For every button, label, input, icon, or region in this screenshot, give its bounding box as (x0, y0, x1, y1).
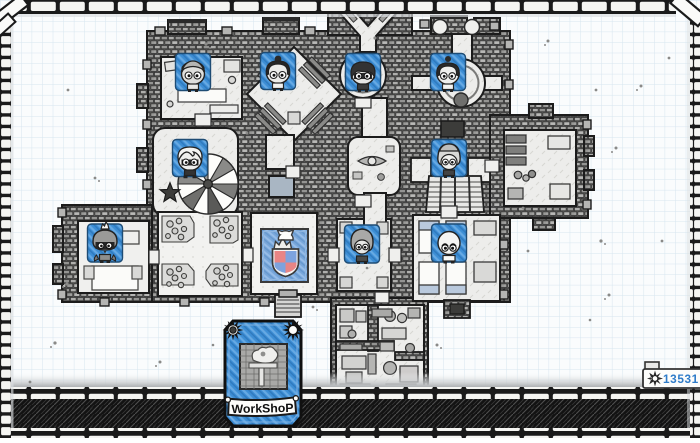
svg-text:WorkShoP: WorkShoP (231, 401, 293, 416)
svg-text:13531: 13531 (663, 372, 699, 386)
